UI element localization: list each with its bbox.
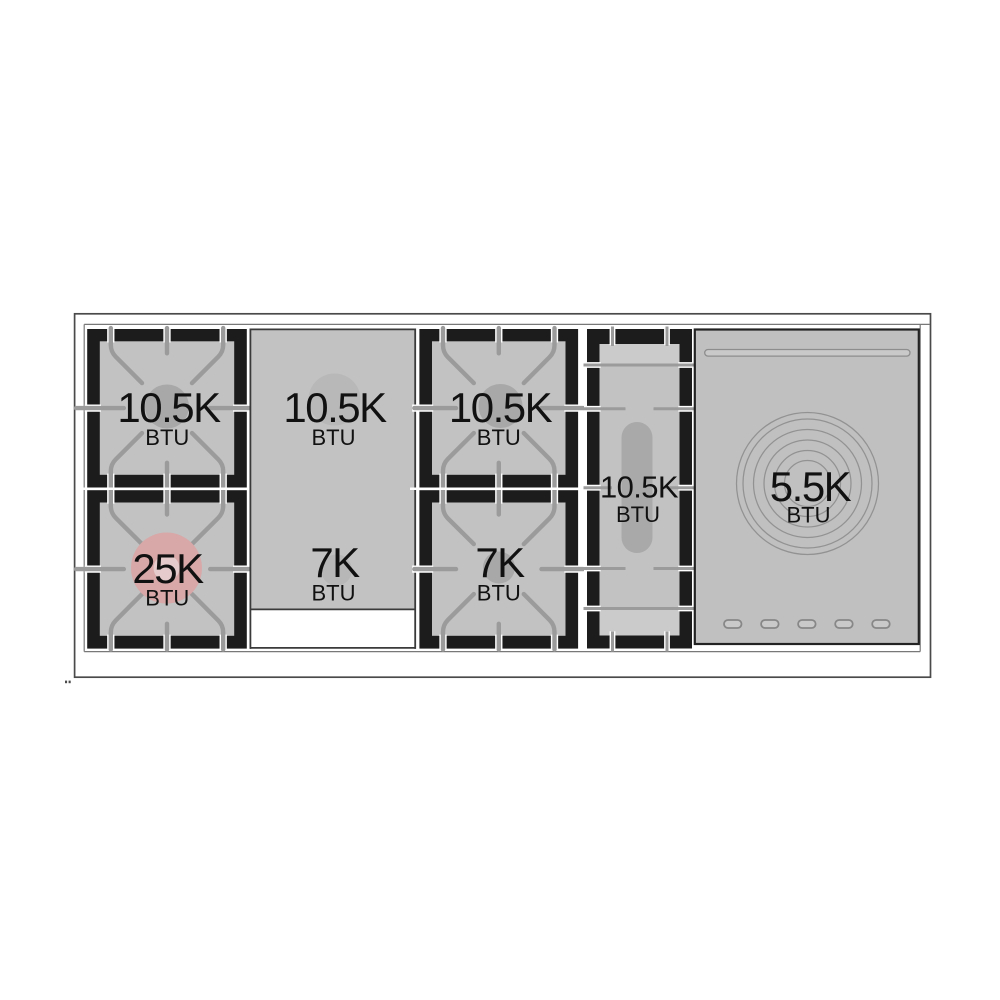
svg-text:10.5K: 10.5K — [449, 384, 553, 431]
svg-text:10.5K: 10.5K — [117, 384, 221, 431]
svg-text:10.5K: 10.5K — [283, 384, 387, 431]
svg-text:BTU: BTU — [145, 585, 189, 610]
svg-text:BTU: BTU — [477, 580, 521, 605]
svg-text:7K: 7K — [475, 539, 525, 586]
svg-text:BTU: BTU — [787, 503, 831, 528]
svg-text:BTU: BTU — [616, 502, 660, 527]
svg-text:BTU: BTU — [312, 580, 356, 605]
svg-text:10.5K: 10.5K — [600, 470, 679, 505]
svg-text:BTU: BTU — [312, 425, 356, 450]
svg-text:BTU: BTU — [145, 425, 189, 450]
svg-text:BTU: BTU — [477, 425, 521, 450]
svg-text:7K: 7K — [310, 539, 360, 586]
